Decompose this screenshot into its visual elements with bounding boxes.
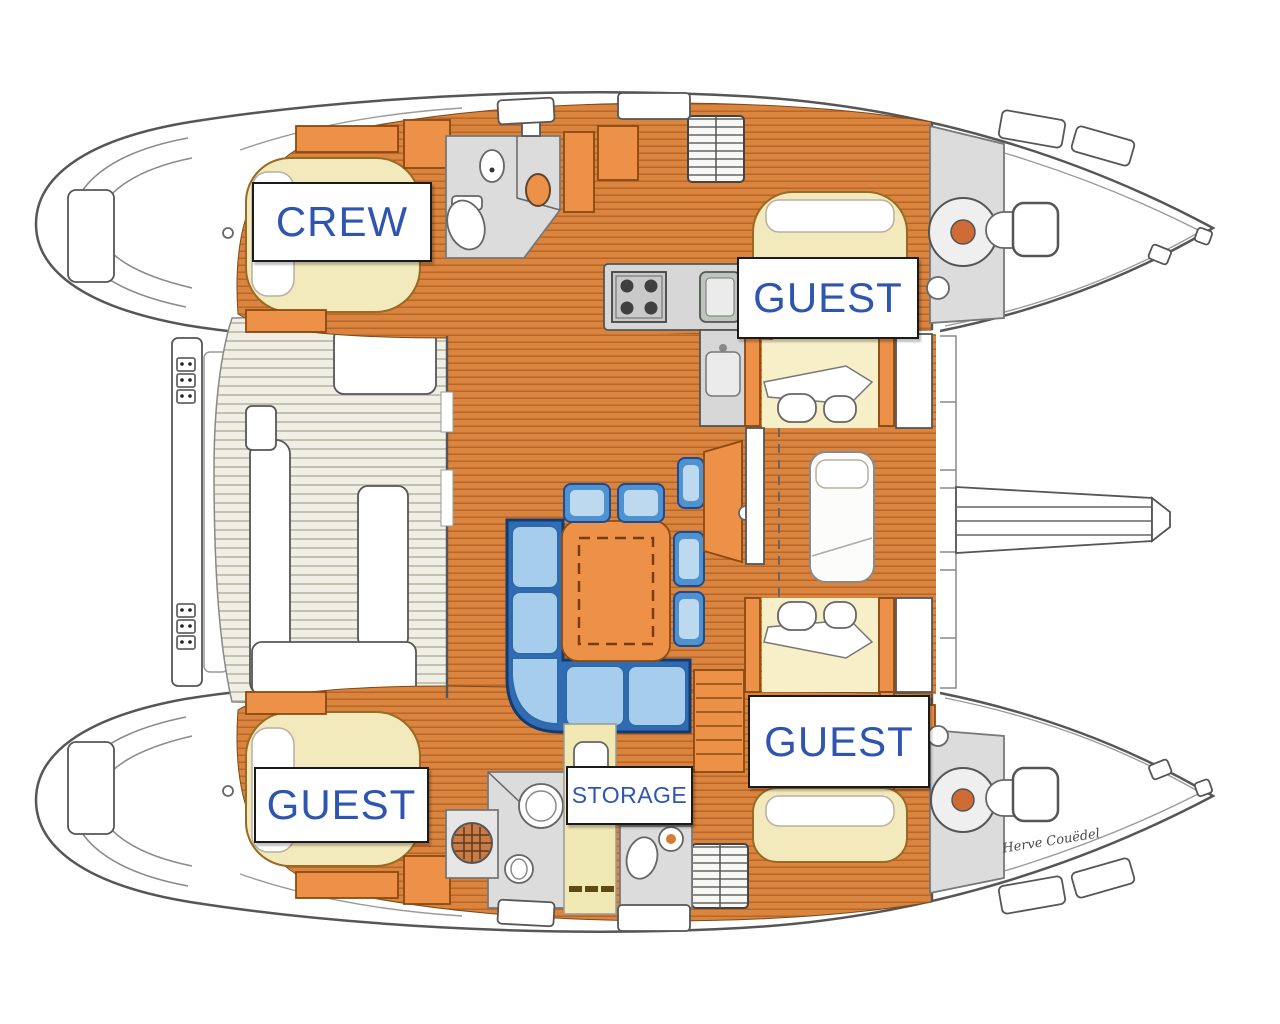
label-guest-cabin-forward-port: GUEST	[737, 257, 919, 339]
porthole-icon	[223, 228, 233, 238]
companionway-steps-port	[688, 116, 744, 182]
floor-plan: CREW GUEST GUEST GUEST STORAGE Herve Cou…	[0, 0, 1280, 1024]
cockpit-seat	[246, 406, 276, 450]
cockpit-table	[358, 486, 408, 648]
label-crew-cabin: CREW	[252, 182, 432, 262]
stove-icon	[612, 272, 666, 322]
companionway-steps-starboard	[692, 844, 748, 908]
stool-icon	[778, 394, 816, 422]
boat-drawing	[0, 0, 1280, 1024]
deck-hatch-icon	[618, 93, 690, 119]
cleat-icon	[177, 604, 195, 649]
label-storage: STORAGE	[566, 766, 693, 825]
sink-icon	[480, 150, 504, 182]
deck-hatch-icon	[497, 900, 554, 927]
sink-icon	[928, 726, 948, 746]
deck-hatch-icon	[497, 98, 554, 125]
aft-cockpit	[214, 315, 447, 706]
pillow	[766, 200, 894, 232]
deck-hatch-icon	[1013, 768, 1058, 821]
label-guest-cabin-forward-starboard: GUEST	[748, 695, 930, 788]
porthole-icon	[223, 786, 233, 796]
pillow	[766, 796, 894, 826]
stool-icon	[824, 602, 856, 628]
deck-hatch-icon	[1071, 857, 1136, 899]
sink-icon	[927, 277, 949, 299]
deck-hatch-icon	[618, 905, 690, 931]
label-guest-cabin-aft-starboard: GUEST	[254, 767, 429, 843]
engine-hatch	[446, 810, 498, 878]
salon-steps-down	[694, 670, 744, 772]
sink-icon	[706, 352, 740, 396]
deck-hatch-icon	[1013, 203, 1058, 256]
cleat-icon	[177, 358, 195, 403]
deck-hatch-icon	[1071, 125, 1136, 167]
stool-icon	[824, 396, 856, 422]
stool-icon	[778, 602, 816, 630]
basin-icon	[526, 174, 550, 206]
